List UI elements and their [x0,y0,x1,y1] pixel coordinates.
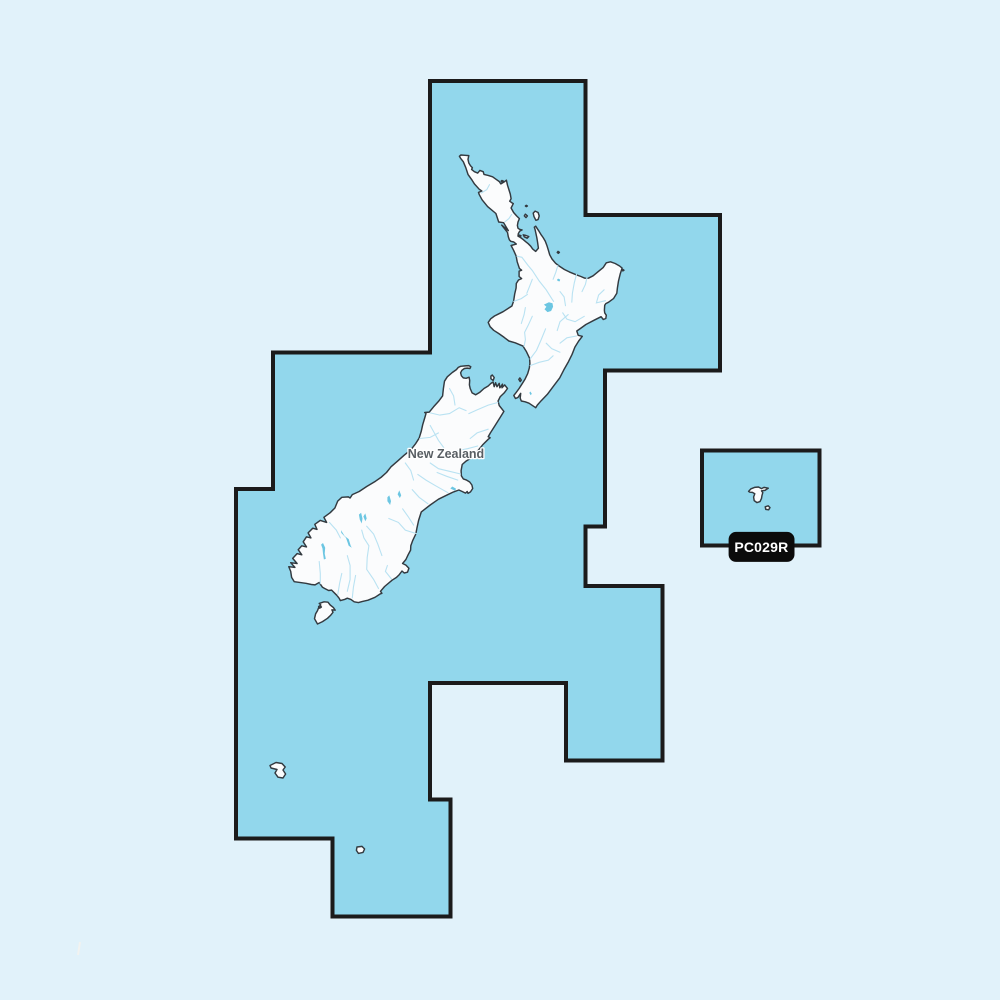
svg-text:PC029R: PC029R [734,539,788,555]
svg-text:New Zealand: New Zealand [408,447,484,461]
